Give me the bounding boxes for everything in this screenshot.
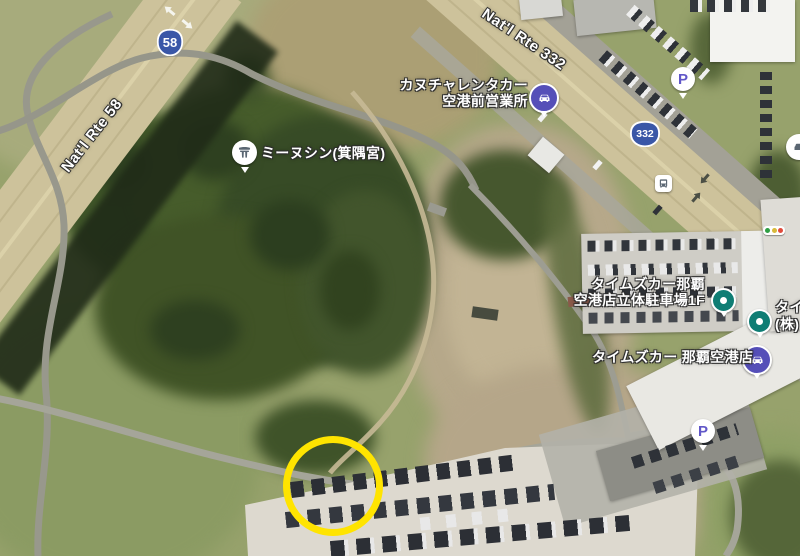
label-rental-office[interactable]: カヌチャレンタカー 空港前営業所	[398, 78, 528, 109]
road-arrow-icon	[697, 170, 713, 186]
traffic-signal-icon	[763, 226, 785, 235]
label-times-parking-deck[interactable]: タイムズカー那覇 空港店立体駐車場1F	[565, 277, 705, 308]
route-shield-58-number: 58	[163, 35, 177, 50]
parking-icon[interactable]: P	[691, 419, 715, 443]
label-edge-clipped[interactable]: タイム (株)	[775, 299, 800, 333]
route-shield-332: 332	[629, 120, 661, 147]
poi-pin-icon[interactable]	[747, 309, 772, 334]
highlight-circle-annotation	[283, 436, 383, 536]
car-rental-icon[interactable]	[529, 83, 559, 113]
label-times-airport-shop[interactable]: タイムズカー 那覇空港店	[592, 350, 753, 366]
road-arrow-icon	[161, 3, 178, 20]
clipped-poi-icon[interactable]	[786, 134, 800, 160]
parking-icon[interactable]: P	[671, 67, 695, 91]
road-arrow-icon	[688, 189, 704, 205]
route-shield-58: 58	[156, 28, 184, 56]
map-canvas[interactable]: 58 332 Nat'l Rte 58 Nat'l Rte 332 カヌチャレン…	[0, 0, 800, 556]
shrine-icon[interactable]	[232, 140, 257, 165]
route-shield-332-number: 332	[636, 128, 654, 140]
poi-pin-icon[interactable]	[711, 288, 736, 313]
bus-stop-icon[interactable]	[655, 175, 672, 192]
label-shrine[interactable]: ミーヌシン(箕隅宮)	[261, 146, 385, 162]
